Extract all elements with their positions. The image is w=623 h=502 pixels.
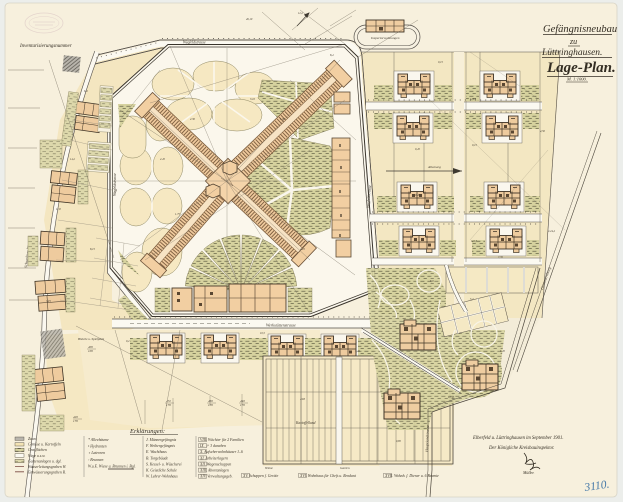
svg-text:4,50: 4,50: [540, 130, 545, 133]
svg-text:12,15: 12,15: [448, 396, 455, 399]
svg-text:Entwässerungsgraben R.: Entwässerungsgraben R.: [27, 470, 66, 474]
svg-text:9,15: 9,15: [438, 61, 443, 64]
svg-text:46,10: 46,10: [246, 18, 253, 21]
svg-text:Elberfeld u. Lüttringhausen im: Elberfeld u. Lüttringhausen im September…: [472, 436, 564, 441]
svg-text:M. 1:1000.: M. 1:1000.: [566, 77, 587, 82]
svg-text:Werkstättenstrasse: Werkstättenstrasse: [266, 323, 296, 328]
svg-text:∘ Laternen: ∘ Laternen: [88, 451, 105, 455]
svg-text:9,45: 9,45: [415, 148, 420, 151]
svg-text:170: 170: [73, 419, 78, 423]
svg-text:IX. 〃 3 daneben: IX. 〃 3 daneben: [199, 444, 226, 448]
svg-text:Lage-Plan.: Lage-Plan.: [546, 60, 616, 76]
svg-text:5,2: 5,2: [470, 298, 474, 301]
svg-text:• Hydranten: • Hydranten: [88, 445, 107, 449]
svg-text:170: 170: [240, 403, 245, 407]
svg-text:α 24,2: α 24,2: [548, 230, 556, 233]
svg-text:Gartenanlagen u. dgl.: Gartenanlagen u. dgl.: [28, 459, 62, 463]
svg-text:◦ Brunnen: ◦ Brunnen: [88, 458, 103, 462]
svg-text:Lüttringhausen.: Lüttringhausen.: [541, 48, 602, 58]
svg-text:170: 170: [208, 403, 213, 407]
svg-text:112,5: 112,5: [471, 240, 478, 243]
svg-text:zu: zu: [569, 37, 577, 46]
svg-text:XIV. Verwaltungsgeb.: XIV. Verwaltungsgeb.: [199, 475, 233, 479]
svg-text:6,45: 6,45: [500, 350, 505, 353]
svg-text:F. Weibergefängnis: F. Weibergefängnis: [145, 444, 175, 448]
svg-text:XI. Arbeiterlagern: XI. Arbeiterlagern: [199, 456, 228, 460]
svg-text:8,15: 8,15: [90, 248, 95, 251]
svg-text:418: 418: [300, 397, 305, 401]
svg-text:Wiese: Wiese: [265, 466, 273, 470]
svg-text:S. Kessel- u. Wäscherei: S. Kessel- u. Wäscherei: [146, 462, 182, 466]
svg-text:W.u.E. Wiese u. Brunnen i. Bgl: W.u.E. Wiese u. Brunnen i. Bgl.: [88, 464, 136, 468]
svg-text:Wasserleitungsgraben W.: Wasserleitungsgraben W.: [28, 465, 67, 469]
svg-text:12,2: 12,2: [298, 12, 303, 15]
svg-text:Der Königliche Kreisbauinspekt: Der Königliche Kreisbauinspektor.: [488, 446, 554, 451]
svg-text:XIII. Abortanlagen: XIII. Abortanlagen: [199, 469, 229, 473]
svg-text:Gefängnisneubau: Gefängnisneubau: [543, 24, 617, 35]
svg-text:14,2: 14,2: [70, 158, 75, 161]
svg-text:2.30: 2.30: [190, 118, 195, 121]
svg-text:9,2: 9,2: [126, 340, 130, 343]
svg-text:170: 170: [166, 403, 171, 407]
svg-text:9,85: 9,85: [396, 440, 401, 443]
svg-text:Wege u.s.w.: Wege u.s.w.: [28, 454, 46, 458]
svg-text:2.45: 2.45: [160, 158, 165, 161]
svg-text:8,4: 8,4: [330, 54, 334, 57]
svg-text:J. Männergefängnis: J. Männergefängnis: [146, 438, 177, 442]
svg-text:10,5: 10,5: [260, 332, 265, 335]
svg-text:100: 100: [88, 349, 93, 353]
svg-text:Inspectorwohnungen: Inspectorwohnungen: [370, 36, 400, 40]
svg-text:X. Aufseherwohnhäuser 1–6: X. Aufseherwohnhäuser 1–6: [199, 450, 243, 454]
svg-text:Müller.: Müller.: [522, 470, 534, 475]
svg-text:XII. Wagenschuppen: XII. Wagenschuppen: [199, 462, 231, 466]
svg-text:2.10: 2.10: [265, 158, 270, 161]
svg-text:Erklärungen:: Erklärungen:: [129, 428, 165, 435]
svg-text:B. Torgebäude: B. Torgebäude: [146, 456, 168, 460]
svg-text:XVI. Wohnhaus für Chefs u. Ren: XVI. Wohnhaus für Chefs u. Rendant: [299, 474, 357, 478]
svg-text:3.10: 3.10: [250, 98, 255, 101]
svg-text:XVII. Wohnh. f. Diener u. 6 Be: XVII. Wohnh. f. Diener u. 6 Beamte: [384, 474, 439, 478]
svg-text:112,5: 112,5: [470, 98, 477, 101]
svg-text:Gemüse u. Kartoffeln: Gemüse u. Kartoffeln: [28, 443, 61, 447]
svg-text:Garten: Garten: [340, 466, 350, 470]
svg-text:Inventarisierungsnummer: Inventarisierungsnummer: [19, 44, 72, 49]
svg-text:Grasflächen: Grasflächen: [28, 448, 47, 452]
svg-text:Zaun: Zaun: [28, 437, 36, 441]
svg-text:Kartoffelland: Kartoffelland: [295, 421, 316, 425]
svg-text:Bleiche u. Spielplatz: Bleiche u. Spielplatz: [78, 337, 105, 341]
svg-text:Alleeweg: Alleeweg: [427, 165, 441, 169]
svg-text:8,0: 8,0: [430, 280, 434, 283]
svg-text:9,15: 9,15: [472, 144, 477, 147]
svg-text:7,35: 7,35: [498, 256, 503, 259]
svg-text:* Alleebäume: * Alleebäume: [88, 438, 109, 442]
svg-text:7,25: 7,25: [355, 350, 360, 353]
svg-text:1.75: 1.75: [175, 213, 180, 216]
svg-text:6,4: 6,4: [84, 90, 88, 93]
svg-text:9,45: 9,45: [415, 194, 420, 197]
svg-text:3.05: 3.05: [200, 258, 205, 261]
svg-text:Wegfeldstrasse: Wegfeldstrasse: [113, 173, 117, 196]
svg-text:325: 325: [46, 299, 51, 303]
svg-text:4.25: 4.25: [300, 248, 305, 251]
svg-text:K. Geistliche Schule: K. Geistliche Schule: [145, 469, 177, 473]
svg-text:E. Wachthaus: E. Wachthaus: [145, 450, 167, 454]
svg-text:11,8: 11,8: [56, 208, 61, 211]
svg-text:Wegfeldstrasse: Wegfeldstrasse: [183, 41, 206, 45]
svg-text:W. Lehrer-Wohnhaus: W. Lehrer-Wohnhaus: [146, 475, 178, 479]
